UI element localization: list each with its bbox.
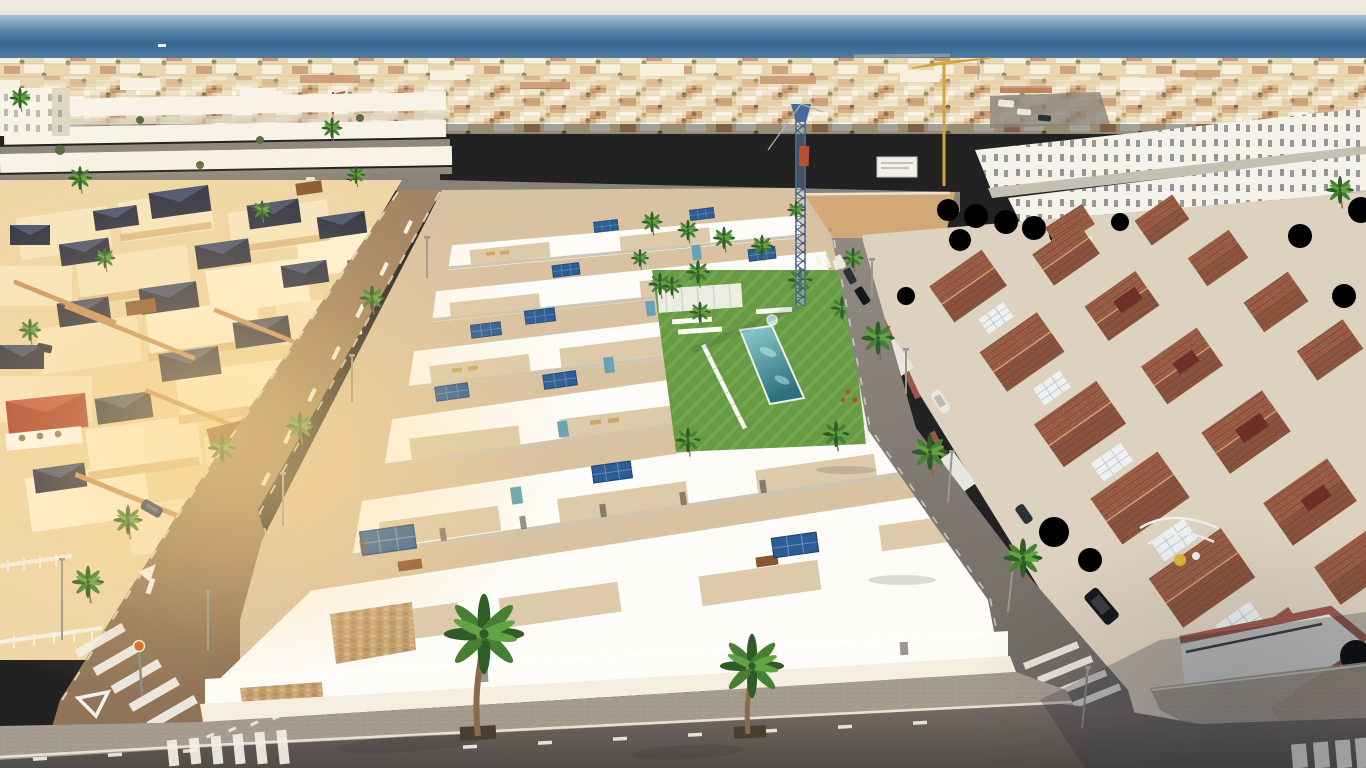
boat <box>158 44 166 47</box>
construction-banner <box>877 157 917 177</box>
upper-right-road <box>990 92 1110 128</box>
crane-cab <box>799 146 810 166</box>
parked-car <box>1017 108 1031 115</box>
gate <box>900 642 909 656</box>
communal-garden <box>649 260 868 456</box>
scene-svg <box>0 0 1366 768</box>
parked-car <box>998 99 1015 107</box>
parked-car <box>1038 114 1051 121</box>
aerial-photo: Aerial view of a Mediterranean coastal t… <box>0 0 1366 768</box>
